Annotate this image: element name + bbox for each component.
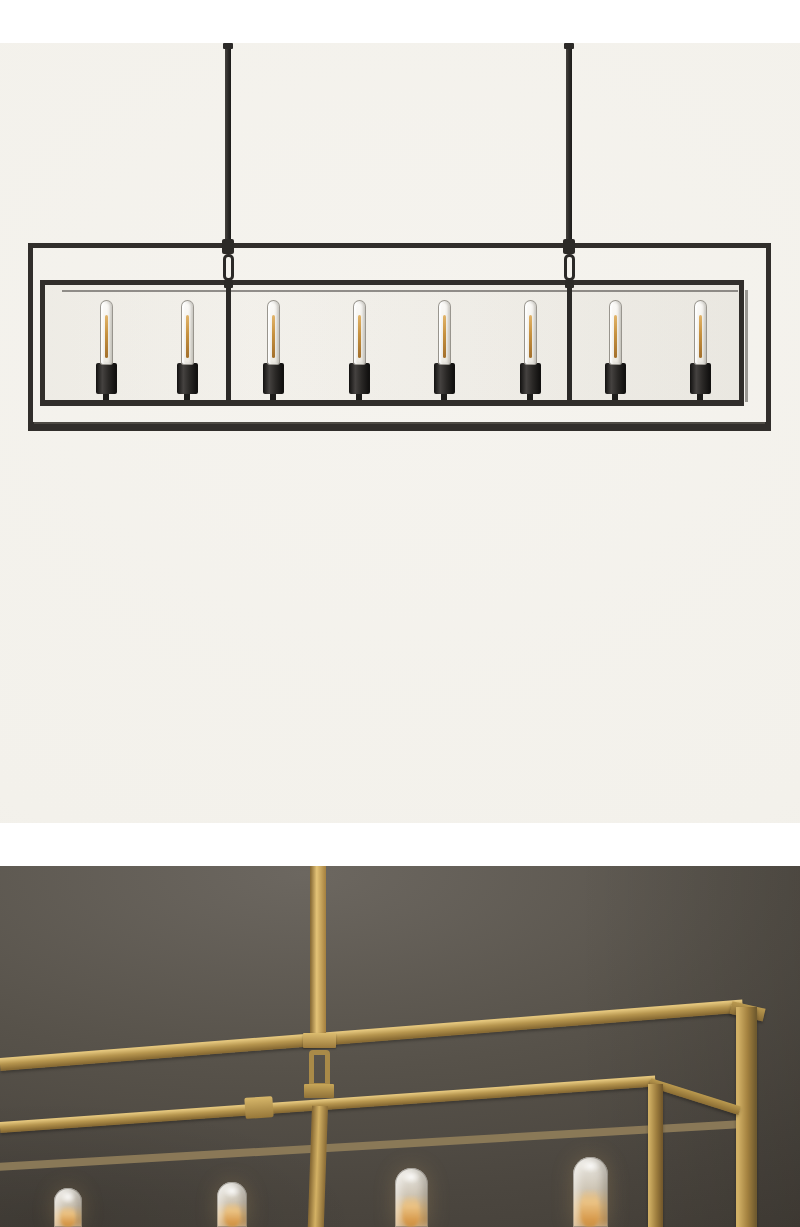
rod-ceiling-cap	[564, 43, 574, 49]
tubular-bulb-lit	[217, 1182, 247, 1227]
inner-frame-back-edge	[62, 290, 738, 292]
inner-glass-case-frame	[40, 280, 744, 406]
hanging-rod-right	[566, 43, 572, 249]
rod-ceiling-cap	[223, 43, 233, 49]
hanging-rod-left	[225, 43, 231, 249]
bulb-socket	[520, 363, 541, 394]
bulb-socket	[263, 363, 284, 394]
rod-hook-loop	[564, 254, 575, 281]
bulb-top-highlight	[223, 1184, 241, 1198]
bulb-socket	[605, 363, 626, 394]
bulb-filament	[186, 315, 189, 358]
bulb-filament	[529, 315, 532, 358]
bulb-filament	[614, 315, 617, 358]
inner-frame-back-edge	[745, 290, 748, 402]
bulb-top-highlight	[401, 1170, 421, 1184]
rod-clamp	[563, 239, 575, 254]
image-separator	[0, 823, 800, 866]
post-clamp	[224, 281, 233, 288]
bulb-socket	[177, 363, 198, 394]
inner-bar-clamp	[244, 1096, 273, 1119]
bulb-top-highlight	[60, 1190, 77, 1204]
post-clamp	[565, 281, 574, 288]
bulb-top-highlight	[580, 1159, 601, 1173]
bulb-socket	[690, 363, 711, 394]
bulb-filament-glow	[225, 1202, 240, 1227]
rod-hook-foot	[304, 1084, 334, 1098]
product-image-gallery	[0, 0, 800, 1227]
brass-hanging-rod	[310, 866, 326, 1040]
back-rail	[0, 1120, 748, 1171]
bulb-filament	[443, 315, 446, 358]
outer-frame-bottom-highlight	[34, 422, 765, 424]
outer-frame-top-bar	[0, 1000, 743, 1071]
bulb-rail	[45, 400, 739, 406]
bulb-socket	[434, 363, 455, 394]
center-post	[567, 282, 572, 401]
center-post	[226, 282, 231, 401]
bulb-filament-glow	[581, 1189, 599, 1227]
bulb-filament-glow	[403, 1195, 420, 1227]
bulb-filament	[105, 315, 108, 358]
rod-hook-loop	[223, 254, 234, 281]
inner-frame-right-vertical	[648, 1084, 663, 1227]
product-photo-primary[interactable]	[0, 43, 800, 823]
bulb-filament	[699, 315, 702, 358]
tubular-bulb-lit	[573, 1157, 608, 1227]
tubular-bulb-lit	[54, 1188, 82, 1227]
bulb-socket	[96, 363, 117, 394]
rod-hook-loop	[309, 1050, 330, 1088]
bulb-filament	[358, 315, 361, 358]
center-post	[308, 1106, 328, 1227]
outer-frame-right-vertical	[736, 1007, 757, 1227]
rod-holder-block	[303, 1033, 336, 1048]
tubular-bulb-lit	[395, 1168, 428, 1227]
rod-clamp	[222, 239, 234, 254]
bulb-filament-glow	[61, 1206, 75, 1227]
product-photo-secondary[interactable]	[0, 866, 800, 1227]
bulb-socket	[349, 363, 370, 394]
bulb-filament	[272, 315, 275, 358]
